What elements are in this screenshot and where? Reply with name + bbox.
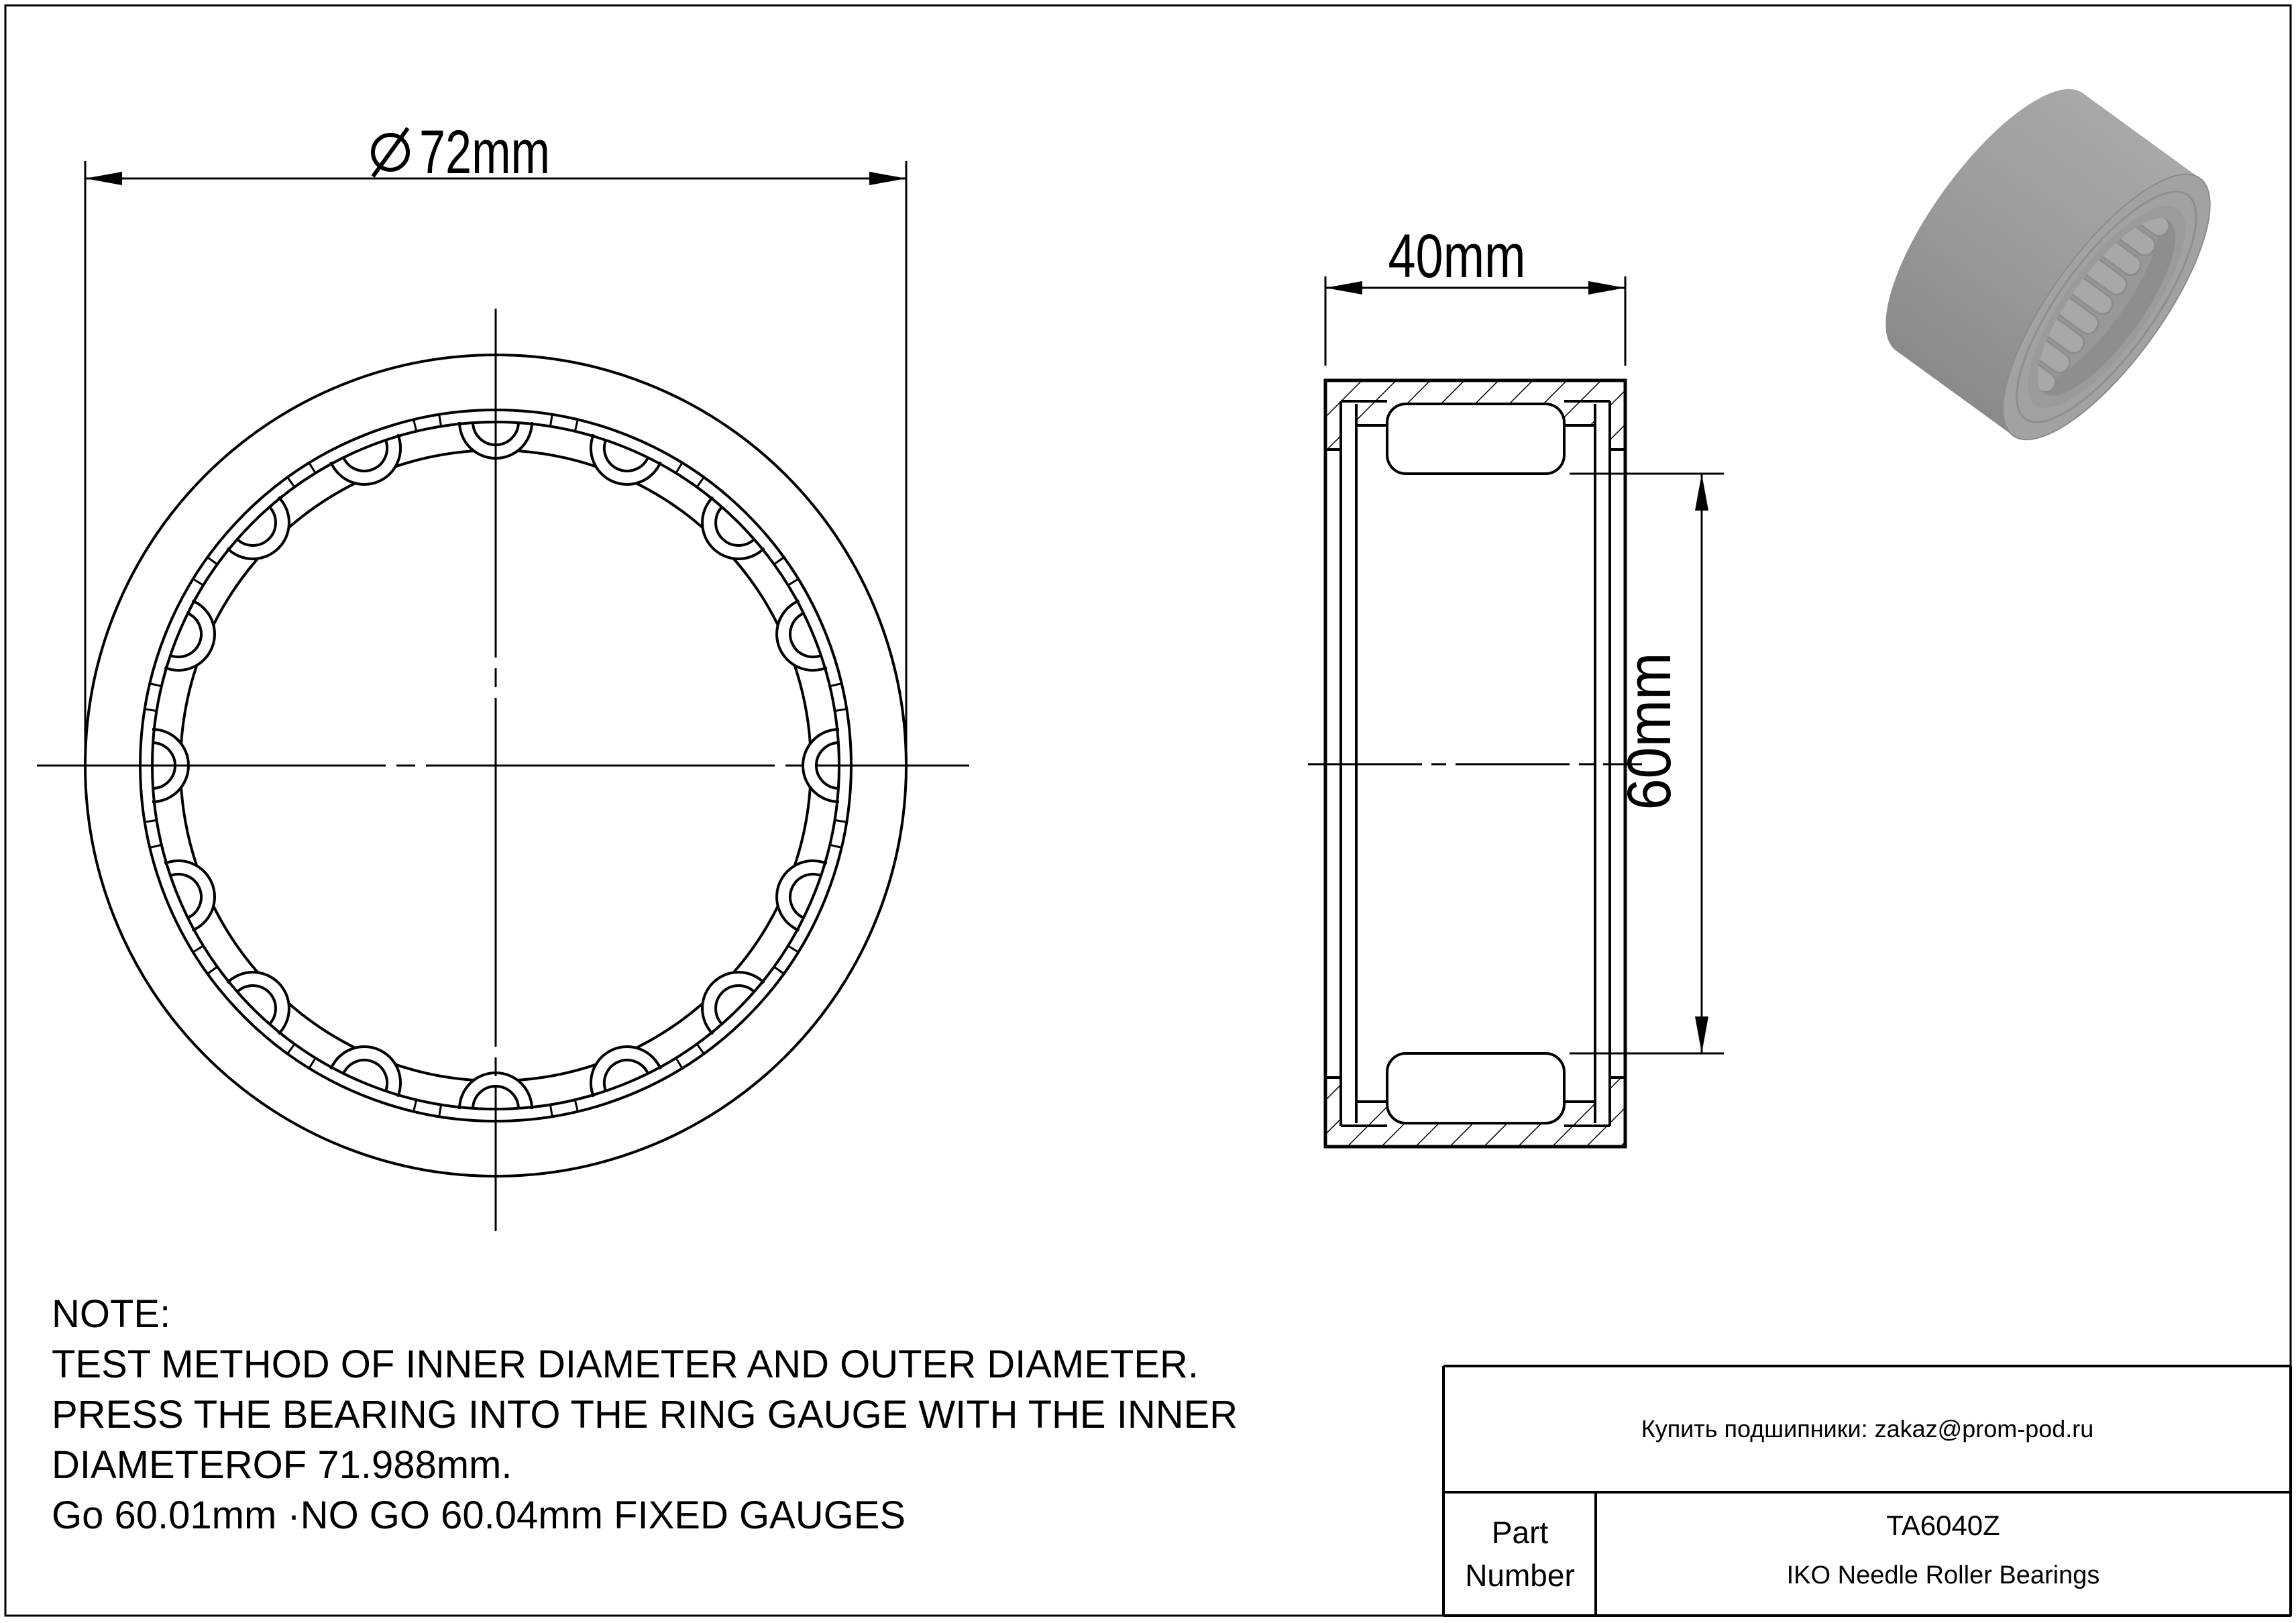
clearance-notch (1595, 401, 1610, 425)
front-view: 72mm (37, 118, 969, 1231)
clearance-notch (1341, 401, 1356, 425)
cage-pocket-tick (150, 684, 162, 686)
cage-pocket-tick (550, 1104, 552, 1116)
cage-pocket-tick (309, 1058, 315, 1068)
clearance-notch (1595, 1102, 1610, 1126)
cage-pocket-tick (288, 1044, 295, 1054)
note-line: DIAMETEROF 71.988mm. (52, 1443, 512, 1487)
shell-lip-top-left (1325, 425, 1341, 450)
cage-pocket-tick (676, 463, 682, 473)
width-dimension: 40mm (1325, 222, 1625, 366)
needle-roller (688, 957, 765, 1035)
cage-pocket-tick (207, 558, 217, 565)
note-line: PRESS THE BEARING INTO THE RING GAUGE WI… (52, 1393, 1238, 1436)
cage-pocket-tick (575, 1100, 578, 1112)
product-name: IKO Needle Roller Bearings (1787, 1561, 2100, 1589)
cage-pocket-tick (439, 415, 441, 427)
cage-pocket-tick (788, 579, 798, 585)
note-line: TEST METHOD OF INNER DIAMETER AND OUTER … (52, 1343, 1199, 1386)
arrowhead-right-icon (1588, 281, 1625, 295)
arrowhead-left-icon (85, 172, 122, 185)
bearing-3d-render (1851, 61, 2244, 468)
cage-pocket-tick (550, 415, 552, 427)
cage-pocket-tick (414, 1100, 417, 1112)
cage-pocket-tick (830, 845, 842, 847)
cage-pocket-tick (145, 820, 157, 822)
cage-pocket-tick (575, 419, 578, 431)
technical-drawing-canvas: 72mm (0, 0, 2296, 1623)
arrowhead-left-icon (1325, 281, 1362, 295)
cage-pocket-tick (834, 820, 846, 822)
needle-roller (688, 497, 765, 574)
diameter-symbol-icon (373, 128, 408, 176)
title-block: Купить подшипники: zakaz@prom-pod.ru Par… (1443, 1366, 2291, 1616)
cage-pocket-tick (193, 946, 203, 952)
roller-section-bottom (1387, 1053, 1564, 1123)
shell-lip-top-right (1610, 425, 1625, 450)
drawing-page: 72mm (0, 0, 2296, 1623)
cage-pocket-tick (150, 845, 162, 847)
cage-pocket-tick (414, 419, 417, 431)
cage-pocket-tick (834, 709, 846, 711)
note-line: Go 60.01mm ·NO GO 60.04mm FIXED GAUGES (52, 1494, 906, 1537)
contact-email-text: Купить подшипники: zakaz@prom-pod.ru (1641, 1415, 2094, 1443)
section-view: 40mm 60mm (1308, 222, 1724, 1147)
cage-pocket-tick (788, 946, 798, 952)
cage-pocket-tick (193, 579, 203, 585)
arrowhead-right-icon (869, 172, 906, 185)
shell-lip-bottom-left (1325, 1078, 1341, 1102)
width-dimension-label: 40mm (1388, 222, 1526, 291)
cage-pocket-tick (830, 684, 842, 686)
cage-pocket-tick (697, 477, 704, 487)
needle-roller (227, 957, 305, 1035)
cage-pocket-tick (309, 463, 315, 473)
cage-pocket-tick (774, 967, 784, 974)
cage-pocket-tick (774, 558, 784, 565)
cage-pocket-tick (145, 709, 157, 711)
diameter-dimension-label: 72mm (419, 118, 550, 187)
bore-dimension-label: 60mm (1615, 653, 1684, 810)
note-block: NOTE: TEST METHOD OF INNER DIAMETER AND … (52, 1292, 1238, 1537)
part-number-label-line2: Number (1465, 1558, 1575, 1593)
note-title: NOTE: (52, 1292, 170, 1336)
arrowhead-down-icon (1695, 1016, 1708, 1053)
cage-pocket-tick (207, 967, 217, 974)
cage-pocket-tick (676, 1058, 682, 1068)
cage-pocket-tick (439, 1104, 441, 1116)
part-number-value: TA6040Z (1886, 1510, 2000, 1541)
part-number-label-line1: Part (1492, 1515, 1549, 1550)
roller-section-top (1387, 404, 1564, 474)
cage-pocket-tick (288, 477, 295, 487)
cage-pocket-tick (697, 1044, 704, 1054)
arrowhead-up-icon (1695, 474, 1708, 511)
shell-lip-bottom-right (1610, 1078, 1625, 1102)
clearance-notch (1341, 1102, 1356, 1126)
needle-roller (227, 497, 305, 574)
